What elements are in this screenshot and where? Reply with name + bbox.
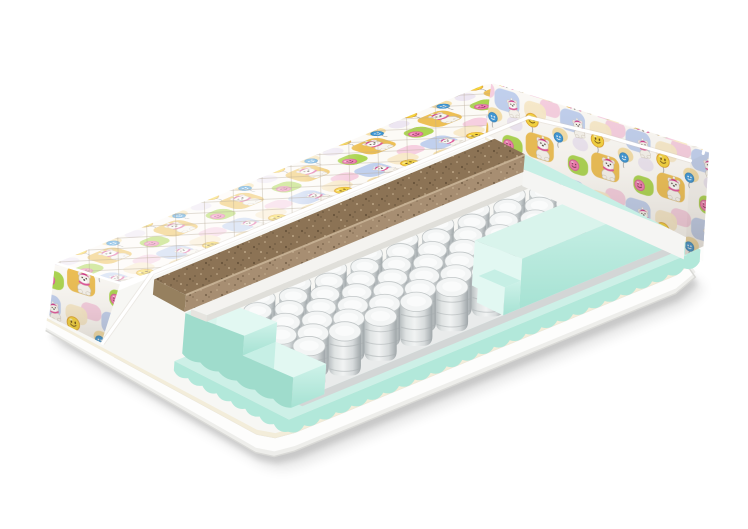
mattress-cutaway-render (0, 0, 748, 529)
product-photo (0, 0, 748, 529)
